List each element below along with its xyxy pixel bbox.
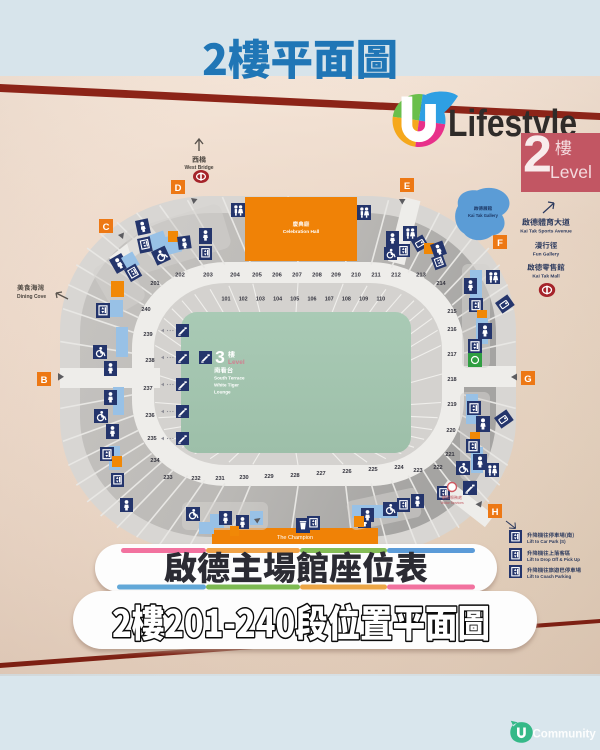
svg-text:216: 216 <box>447 327 456 333</box>
svg-text:220: 220 <box>446 428 455 434</box>
svg-text:231: 231 <box>215 476 224 482</box>
svg-text:C: C <box>103 222 110 233</box>
svg-text:210: 210 <box>351 273 361 279</box>
svg-text:223: 223 <box>413 468 422 474</box>
svg-text:Dining Cove: Dining Cove <box>17 294 46 300</box>
svg-text:Level: Level <box>550 162 592 182</box>
svg-text:237: 237 <box>143 386 152 392</box>
svg-text:Lift to Coach Parking: Lift to Coach Parking <box>527 574 571 579</box>
svg-text:Community: Community <box>533 729 597 741</box>
svg-text:E: E <box>404 181 410 192</box>
svg-text:103: 103 <box>256 297 265 303</box>
svg-text:Kai Tak Mall: Kai Tak Mall <box>532 274 559 280</box>
svg-text:217: 217 <box>447 352 456 358</box>
svg-text:108: 108 <box>342 297 351 303</box>
svg-text:218: 218 <box>447 377 456 383</box>
svg-text:White Tiger: White Tiger <box>214 383 239 388</box>
svg-text:203: 203 <box>203 273 213 279</box>
svg-text:222: 222 <box>433 465 442 471</box>
svg-text:Level: Level <box>228 359 245 366</box>
svg-text:201: 201 <box>150 281 159 287</box>
svg-text:F: F <box>497 238 503 249</box>
svg-text:Lift to Drop Off & Pick Up: Lift to Drop Off & Pick Up <box>527 557 580 562</box>
svg-text:215: 215 <box>447 309 456 315</box>
svg-text:The Champion: The Champion <box>277 535 313 541</box>
svg-text:213: 213 <box>416 273 426 279</box>
svg-text:219: 219 <box>447 402 456 408</box>
svg-text:230: 230 <box>239 475 248 481</box>
svg-text:B: B <box>41 375 48 386</box>
svg-text:226: 226 <box>342 469 351 475</box>
svg-text:Visitor Services: Visitor Services <box>440 501 464 505</box>
svg-text:202: 202 <box>175 273 185 279</box>
svg-text:109: 109 <box>359 297 368 303</box>
svg-text:204: 204 <box>230 273 240 279</box>
svg-text:104: 104 <box>273 297 282 303</box>
svg-text:238: 238 <box>145 358 154 364</box>
svg-text:225: 225 <box>368 467 377 473</box>
svg-text:239: 239 <box>143 332 152 338</box>
svg-text:Lift to Car Park (S): Lift to Car Park (S) <box>527 539 566 544</box>
svg-text:West Bridge: West Bridge <box>184 165 213 171</box>
svg-text:221: 221 <box>445 452 454 458</box>
svg-text:212: 212 <box>391 273 401 279</box>
svg-text:110: 110 <box>376 297 385 303</box>
svg-text:240: 240 <box>141 307 150 313</box>
svg-text:3: 3 <box>215 347 225 367</box>
svg-text:211: 211 <box>371 273 381 279</box>
svg-text:206: 206 <box>272 273 282 279</box>
svg-text:227: 227 <box>316 471 325 477</box>
svg-text:232: 232 <box>191 476 200 482</box>
svg-text:Kai Tak Gallery: Kai Tak Gallery <box>468 213 499 218</box>
svg-text:Kai Tak Sports Avenue: Kai Tak Sports Avenue <box>520 229 572 235</box>
svg-text:229: 229 <box>264 474 273 480</box>
svg-text:208: 208 <box>312 273 322 279</box>
svg-text:South Terrace: South Terrace <box>214 376 245 381</box>
svg-text:233: 233 <box>163 475 172 481</box>
svg-text:236: 236 <box>145 413 154 419</box>
svg-text:107: 107 <box>325 297 334 303</box>
svg-text:205: 205 <box>252 273 262 279</box>
svg-text:101: 101 <box>222 297 231 303</box>
svg-text:102: 102 <box>239 297 248 303</box>
svg-text:D: D <box>175 183 182 194</box>
svg-text:2: 2 <box>523 126 552 184</box>
svg-text:228: 228 <box>290 473 299 479</box>
svg-text:106: 106 <box>308 297 317 303</box>
svg-text:105: 105 <box>290 297 299 303</box>
svg-text:209: 209 <box>331 273 341 279</box>
svg-text:Lounge: Lounge <box>214 390 231 395</box>
svg-text:207: 207 <box>292 273 302 279</box>
svg-text:235: 235 <box>147 436 156 442</box>
svg-text:Fun Gallery: Fun Gallery <box>533 252 560 258</box>
svg-text:G: G <box>524 374 531 385</box>
svg-text:Celebration Hall: Celebration Hall <box>283 229 320 235</box>
svg-text:234: 234 <box>150 458 160 464</box>
svg-text:H: H <box>492 507 499 518</box>
svg-text:224: 224 <box>394 465 404 471</box>
svg-text:214: 214 <box>436 281 446 287</box>
